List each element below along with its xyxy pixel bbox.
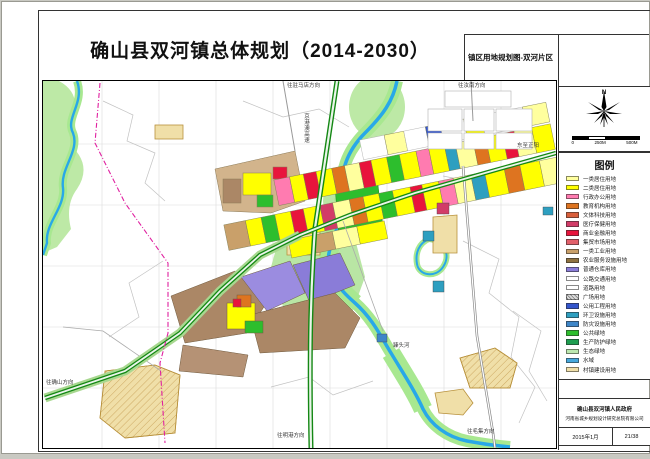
legend-item: 生态绿地 (559, 347, 650, 356)
legend-item: 文体科技用地 (559, 210, 650, 219)
legend-label: 普通仓库用地 (583, 265, 616, 273)
unbuilt-blocks (428, 91, 532, 149)
map-label: 东至正阳 (517, 143, 539, 149)
legend-title: 图例 (559, 157, 650, 172)
map-label: 往明港方向 (277, 433, 305, 439)
legend-label: 防灾设施用地 (583, 320, 616, 328)
drawing-sheet: 确山县双河镇总体规划（2014-2030） 镇区用地规划图-双河片区 (1, 1, 650, 454)
legend-item: 普通仓库用地 (559, 265, 650, 274)
legend-swatch (566, 267, 579, 273)
legend-item: 公用工程用地 (559, 301, 650, 310)
legend-item: 道路用地 (559, 283, 650, 292)
legend-swatch (566, 339, 579, 345)
legend-label: 农业服务设施用地 (583, 256, 627, 264)
legend-item: 公共绿地 (559, 329, 650, 338)
legend-item: 商业金融用地 (559, 229, 650, 238)
government-name: 确山县双河镇人民政府 (577, 405, 632, 413)
legend-label: 一类居住用地 (583, 175, 616, 183)
legend-swatch (566, 285, 579, 291)
legend-label: 环卫设施用地 (583, 311, 616, 319)
compass-rose: N (559, 87, 648, 129)
legend-swatch (566, 203, 579, 209)
map-subtitle-cell: 镇区用地规划图-双河片区 (464, 34, 556, 80)
legend-swatch (566, 294, 579, 300)
scale-tick-500: 500M (626, 140, 637, 145)
legend-item: 生产防护绿地 (559, 338, 650, 347)
legend-label: 生产防护绿地 (583, 338, 616, 346)
north-label: N (602, 90, 606, 96)
drawing-page-number: 21/38 (613, 428, 650, 445)
legend-item: 行政办公用地 (559, 192, 650, 201)
map-label: 往驻马店方向 (287, 83, 320, 89)
legend-label: 生态绿地 (583, 347, 605, 355)
legend-label: 文体科技用地 (583, 211, 616, 219)
legend-swatch (566, 185, 579, 191)
legend-label: 集贸市场用地 (583, 238, 616, 246)
legend-item: 公路交通用地 (559, 274, 650, 283)
legend-swatch (566, 349, 579, 355)
design-institute-name: 河南省城乡规划设计研究总院有限公司 (565, 415, 643, 421)
legend-swatch (566, 312, 579, 318)
legend-label: 水域 (583, 356, 594, 364)
map-label: 臻头河 (393, 343, 410, 349)
legend-item: 一类工业用地 (559, 247, 650, 256)
facility-parcels (377, 203, 553, 342)
legend-label: 教育机构用地 (583, 202, 616, 210)
legend-item: 广场用地 (559, 292, 650, 301)
legend-swatch (566, 230, 579, 236)
legend-item: 集贸市场用地 (559, 238, 650, 247)
legend-label: 公用工程用地 (583, 302, 616, 310)
map-label: 京港澳高速 (303, 113, 309, 143)
map-label: 往汝南方向 (458, 83, 486, 89)
title-block: 确山县双河镇人民政府 河南省城乡规划设计研究总院有限公司 2015年1月 21/… (558, 398, 650, 446)
title-block-names: 确山县双河镇人民政府 河南省城乡规划设计研究总院有限公司 (559, 399, 650, 428)
legend-panel: 图例 一类居住用地二类居住用地行政办公用地教育机构用地文体科技用地医疗保健用地商… (558, 152, 650, 380)
map-canvas (43, 81, 556, 448)
legend-item: 村镇建设用地 (559, 365, 650, 374)
legend-label: 医疗保健用地 (583, 220, 616, 228)
map-area[interactable]: 往驻马店方向京港澳高速往汝南方向东至正阳臻头河往确山方向往明港方向往毛集方向 (42, 80, 557, 449)
legend-swatch (566, 321, 579, 327)
legend-item: 水域 (559, 356, 650, 365)
legend-swatch (566, 194, 579, 200)
legend-swatch (566, 358, 579, 364)
legend-label: 公路交通用地 (583, 275, 616, 283)
scale-bar: 0 250M 500M (572, 135, 638, 145)
legend-swatch (566, 276, 579, 282)
legend-label: 村镇建设用地 (583, 366, 616, 374)
legend-label: 广场用地 (583, 293, 605, 301)
page-title: 确山县双河镇总体规划（2014-2030） (60, 36, 460, 63)
legend-swatch (566, 239, 579, 245)
legend-swatch (566, 249, 579, 255)
legend-swatch (566, 212, 579, 218)
legend-item: 防灾设施用地 (559, 320, 650, 329)
legend-item: 教育机构用地 (559, 201, 650, 210)
legend-swatch (566, 176, 579, 182)
legend-label: 行政办公用地 (583, 193, 616, 201)
legend-swatch (566, 367, 579, 373)
legend-swatch (566, 330, 579, 336)
legend-label: 一类工业用地 (583, 247, 616, 255)
legend-rows: 一类居住用地二类居住用地行政办公用地教育机构用地文体科技用地医疗保健用地商业金融… (559, 174, 650, 374)
legend-item: 医疗保健用地 (559, 219, 650, 228)
legend-item: 环卫设施用地 (559, 310, 650, 319)
legend-item: 一类居住用地 (559, 174, 650, 183)
compass-panel: N 0 250M 500M (558, 86, 650, 152)
legend-swatch (566, 221, 579, 227)
map-label: 往毛集方向 (467, 429, 495, 435)
map-label: 往确山方向 (46, 380, 74, 386)
legend-item: 二类居住用地 (559, 183, 650, 192)
legend-label: 道路用地 (583, 284, 605, 292)
legend-label: 二类居住用地 (583, 184, 616, 192)
scale-tick-250: 250M (594, 140, 605, 145)
scale-tick-0: 0 (572, 140, 575, 145)
map-subtitle: 镇区用地规划图-双河片区 (468, 52, 553, 63)
legend-label: 公共绿地 (583, 329, 605, 337)
legend-swatch (566, 303, 579, 309)
legend-label: 商业金融用地 (583, 229, 616, 237)
legend-item: 农业服务设施用地 (559, 256, 650, 265)
legend-swatch (566, 258, 579, 264)
drawing-date: 2015年1月 (559, 428, 613, 445)
